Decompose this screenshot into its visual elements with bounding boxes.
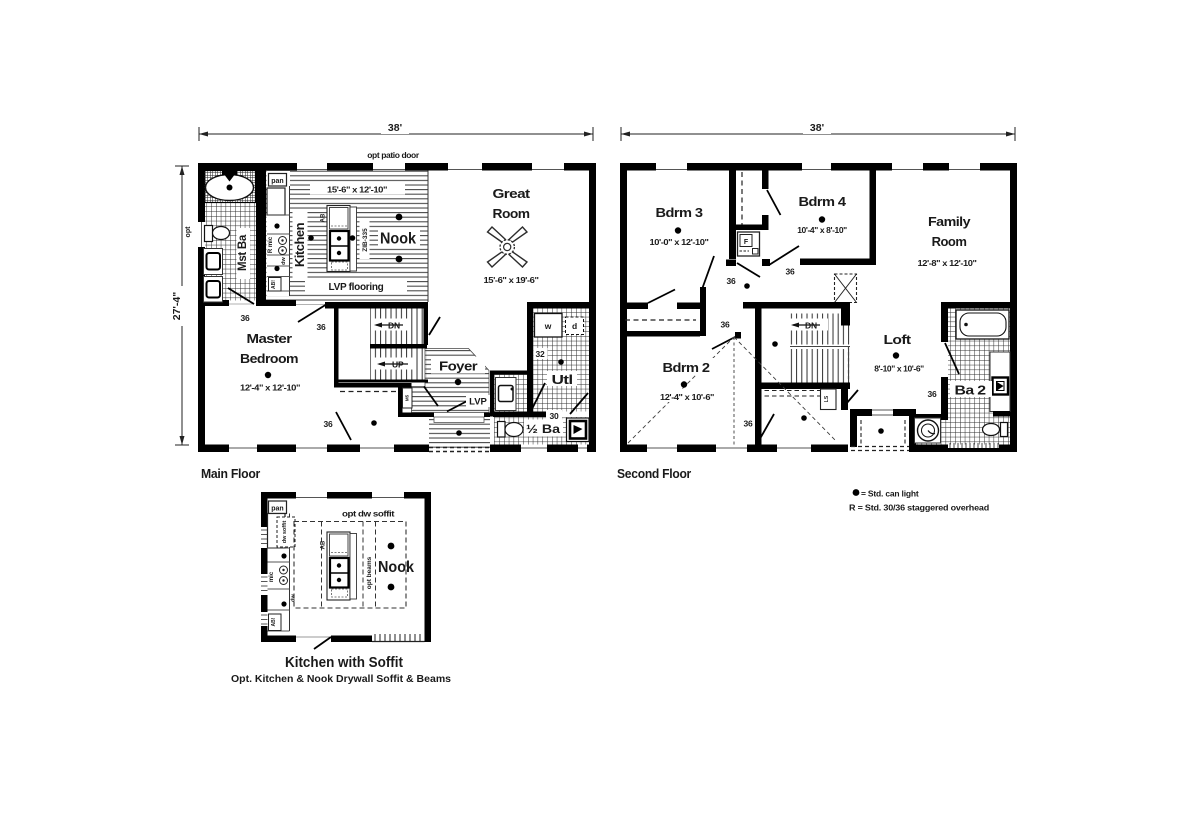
svg-text:Ba 2: Ba 2 xyxy=(955,383,986,398)
svg-text:8'-10" x 10'-6": 8'-10" x 10'-6" xyxy=(874,364,924,374)
svg-text:dw: dw xyxy=(281,256,287,264)
svg-text:Kitchen: Kitchen xyxy=(292,222,307,267)
svg-text:opt patio door: opt patio door xyxy=(367,150,420,160)
svg-text:UP: UP xyxy=(392,360,404,370)
svg-text:pan: pan xyxy=(271,506,283,513)
svg-text:36: 36 xyxy=(720,320,730,330)
svg-text:pan: pan xyxy=(271,178,283,185)
svg-text:M5: M5 xyxy=(405,394,410,401)
svg-text:w: w xyxy=(544,321,552,331)
svg-text:dw soffit: dw soffit xyxy=(282,521,288,544)
svg-text:AB!: AB! xyxy=(271,617,277,626)
svg-text:Second Floor: Second Floor xyxy=(617,466,691,481)
svg-text:36: 36 xyxy=(240,313,250,323)
svg-text:Nook: Nook xyxy=(380,231,416,248)
svg-text:Mst Ba: Mst Ba xyxy=(237,234,249,271)
svg-text:Foyer: Foyer xyxy=(439,359,478,374)
svg-text:12'-8" x 12'-10": 12'-8" x 12'-10" xyxy=(918,258,977,268)
svg-text:= Std. can light: = Std. can light xyxy=(861,489,919,499)
svg-text:Main Floor: Main Floor xyxy=(201,466,260,481)
svg-text:LVP flooring: LVP flooring xyxy=(329,282,384,293)
svg-text:38': 38' xyxy=(388,122,402,134)
svg-text:mic: mic xyxy=(269,571,275,582)
svg-text:LVP: LVP xyxy=(469,397,487,408)
svg-text:opt beams: opt beams xyxy=(366,556,373,589)
svg-text:R mic: R mic xyxy=(268,236,274,253)
svg-text:15'-6" x 19'-6": 15'-6" x 19'-6" xyxy=(484,275,539,285)
svg-text:R = Std. 30/36 staggered overh: R = Std. 30/36 staggered overhead xyxy=(849,503,989,513)
svg-text:Bedroom: Bedroom xyxy=(240,351,298,366)
svg-text:36: 36 xyxy=(323,419,333,429)
svg-text:Loft: Loft xyxy=(884,332,912,347)
svg-text:AB: AB xyxy=(321,540,327,549)
svg-text:opt dw soffit: opt dw soffit xyxy=(342,509,395,519)
svg-text:d: d xyxy=(572,321,577,331)
svg-text:Bdrm 3: Bdrm 3 xyxy=(656,205,703,220)
svg-text:10'-4" x 8'-10": 10'-4" x 8'-10" xyxy=(797,225,847,235)
svg-text:AB!: AB! xyxy=(271,280,277,289)
svg-text:½ Ba: ½ Ba xyxy=(526,422,560,436)
svg-text:Room: Room xyxy=(493,206,530,221)
svg-text:12'-4" x 10'-6": 12'-4" x 10'-6" xyxy=(660,392,714,402)
svg-text:Bdrm 2: Bdrm 2 xyxy=(663,360,710,375)
svg-text:Opt. Kitchen & Nook Drywall So: Opt. Kitchen & Nook Drywall Soffit & Bea… xyxy=(231,673,451,685)
svg-text:opt: opt xyxy=(185,226,192,238)
svg-text:Kitchen with Soffit: Kitchen with Soffit xyxy=(285,654,403,671)
svg-text:36: 36 xyxy=(785,267,795,277)
svg-text:12'-4" x 12'-10": 12'-4" x 12'-10" xyxy=(240,383,300,393)
svg-text:LS: LS xyxy=(824,395,830,402)
svg-text:Utl: Utl xyxy=(552,372,573,387)
svg-text:36: 36 xyxy=(726,276,736,286)
svg-text:ZIB-335: ZIB-335 xyxy=(362,228,369,252)
svg-text:36: 36 xyxy=(316,322,326,332)
svg-text:10'-0" x 12'-10": 10'-0" x 12'-10" xyxy=(650,237,709,247)
svg-text:Great: Great xyxy=(493,186,531,201)
svg-text:DN: DN xyxy=(388,321,400,331)
svg-text:36: 36 xyxy=(743,419,753,429)
svg-text:15'-6" x 12'-10": 15'-6" x 12'-10" xyxy=(327,185,387,195)
svg-text:36: 36 xyxy=(927,389,937,399)
svg-text:27'-4": 27'-4" xyxy=(171,292,183,321)
svg-text:32: 32 xyxy=(535,349,545,359)
svg-text:Room: Room xyxy=(932,234,967,249)
svg-text:38': 38' xyxy=(810,122,824,134)
svg-text:AB: AB xyxy=(321,213,327,222)
svg-text:Master: Master xyxy=(247,331,292,346)
svg-text:F: F xyxy=(744,239,749,246)
svg-text:Nook: Nook xyxy=(378,559,414,576)
svg-text:Family: Family xyxy=(928,214,971,229)
svg-text:Bdrm 4: Bdrm 4 xyxy=(799,194,847,209)
svg-text:DN: DN xyxy=(805,321,817,331)
